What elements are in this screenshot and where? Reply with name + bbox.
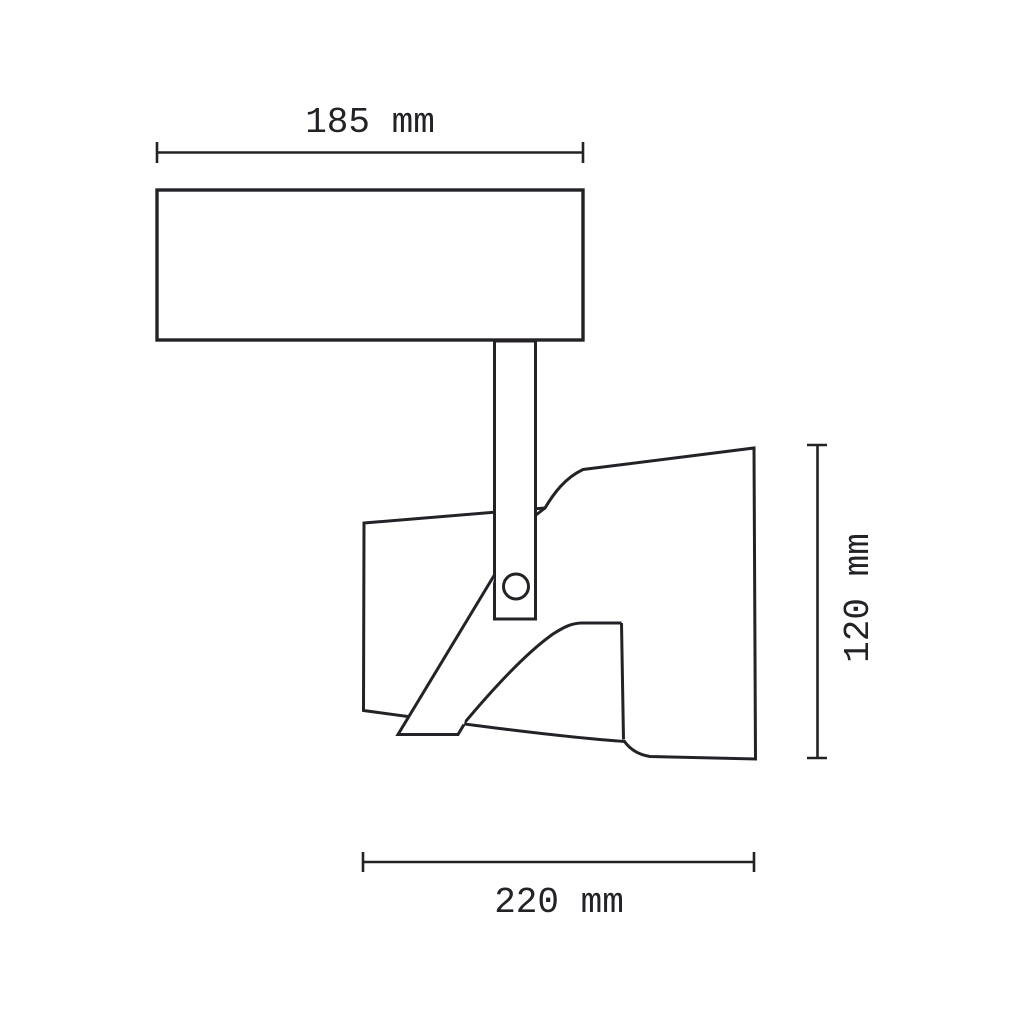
width-dimension-label: 185 mm xyxy=(305,105,435,141)
technical-drawing-canvas xyxy=(0,0,1024,1024)
lamp-front-rim-line xyxy=(622,623,624,740)
pivot-screw-circle xyxy=(504,574,529,599)
width-dimension-line xyxy=(157,142,583,163)
depth-dimension-label: 220 mm xyxy=(494,885,624,921)
height-dimension-label: 120 mm xyxy=(841,533,877,663)
base-plate-outline xyxy=(157,190,583,340)
technical-drawing: 185 mm 120 mm 220 mm xyxy=(0,0,1024,1024)
height-dimension-line xyxy=(807,445,827,758)
depth-dimension-line xyxy=(363,852,754,872)
